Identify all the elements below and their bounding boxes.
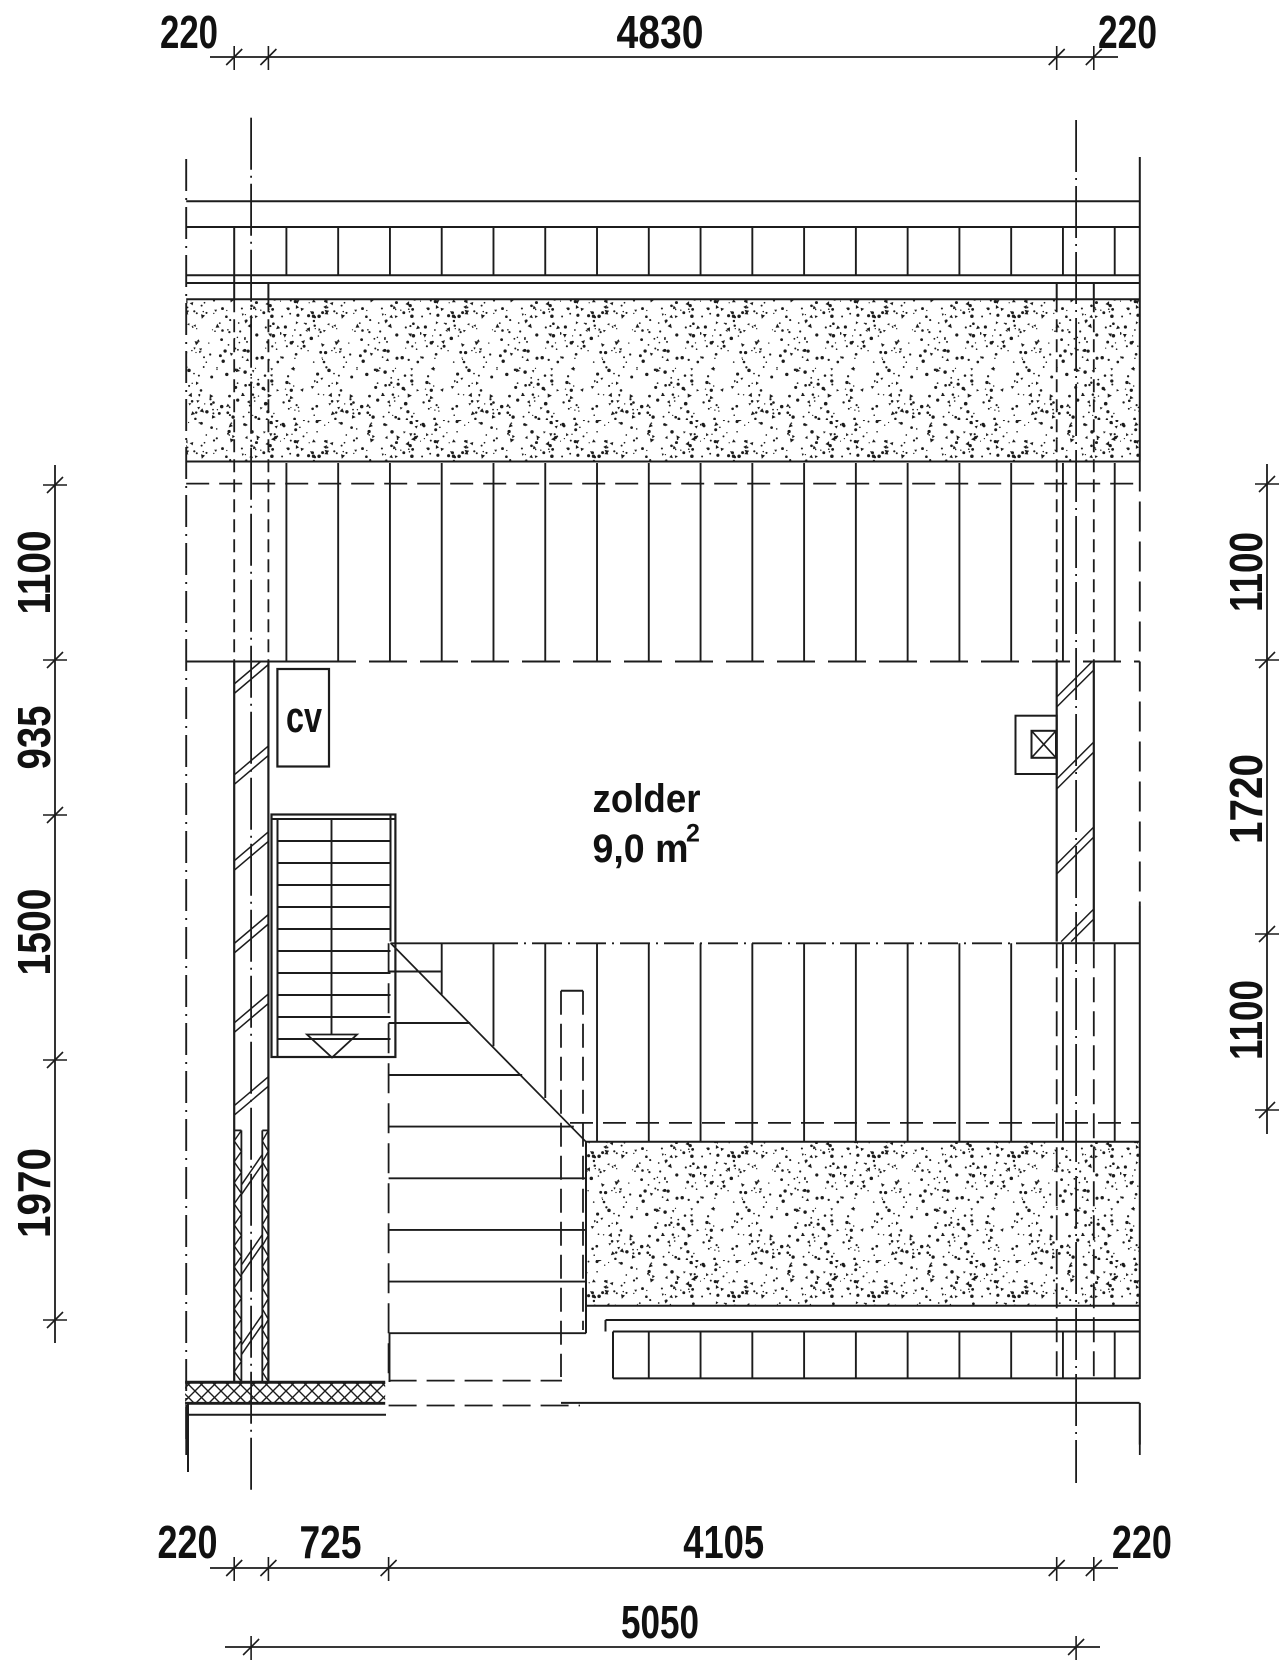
svg-text:220: 220: [1112, 1516, 1172, 1568]
svg-text:1100: 1100: [1220, 980, 1272, 1060]
svg-text:zolder: zolder: [593, 777, 701, 821]
svg-text:9,0 m: 9,0 m: [593, 827, 689, 871]
svg-text:cv: cv: [286, 693, 322, 742]
svg-text:725: 725: [300, 1516, 362, 1568]
svg-text:4830: 4830: [617, 6, 704, 58]
svg-text:1970: 1970: [8, 1148, 60, 1238]
svg-text:220: 220: [160, 6, 218, 58]
svg-text:1100: 1100: [8, 531, 60, 615]
svg-text:4105: 4105: [683, 1516, 764, 1568]
svg-text:1100: 1100: [1220, 532, 1272, 612]
svg-text:5050: 5050: [621, 1596, 699, 1648]
svg-text:220: 220: [1098, 6, 1157, 58]
svg-text:935: 935: [8, 706, 60, 770]
svg-text:2: 2: [686, 820, 700, 848]
svg-text:220: 220: [158, 1516, 218, 1568]
svg-text:1720: 1720: [1220, 754, 1272, 844]
svg-text:1500: 1500: [8, 889, 60, 976]
